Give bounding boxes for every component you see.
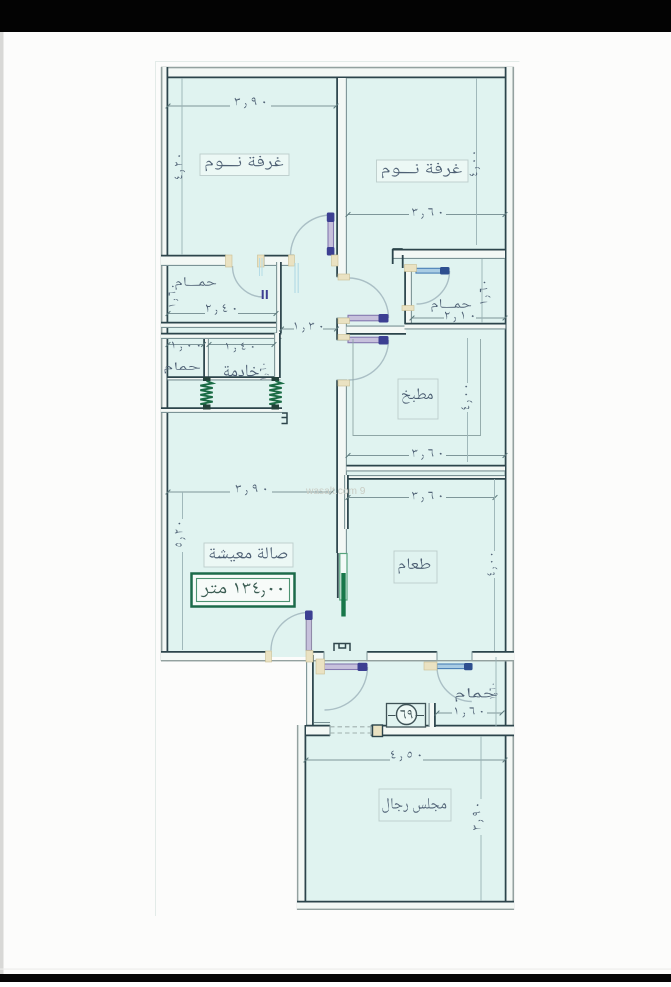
svg-text:wasalt.com 9: wasalt.com 9 — [305, 486, 366, 497]
